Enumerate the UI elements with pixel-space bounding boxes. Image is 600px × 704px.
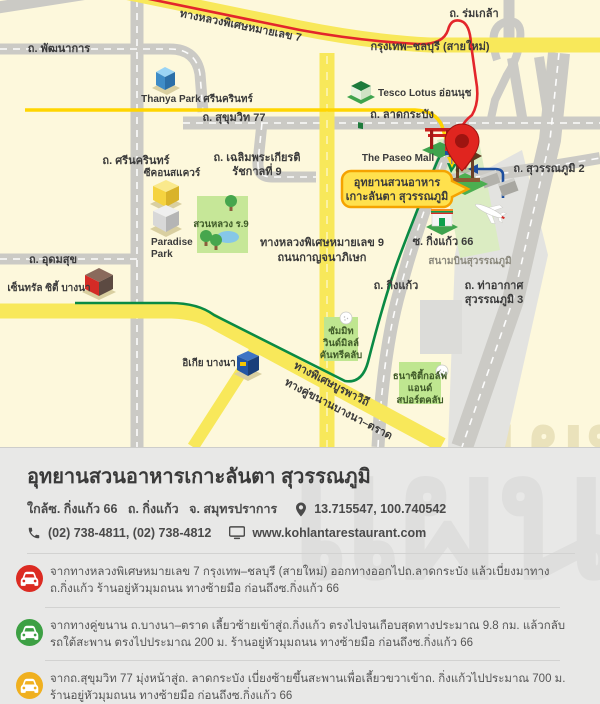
label-thana-1: ธนาซิตี้กอล์ฟ	[393, 368, 448, 382]
label-motorway9-2: ถนนกาญจนาภิเษก	[278, 251, 367, 264]
label-ladkrabang: ถ. ลาดกระบัง	[370, 108, 434, 121]
label-udomsuk: ถ. อุดมสุข	[29, 254, 77, 267]
direction-text: จากถ.สุขุมวิท 77 มุ่งหน้าสู่ถ. ลาดกระบัง…	[50, 670, 570, 704]
label-paradise-1: Paradise	[151, 237, 193, 248]
monitor-icon	[229, 526, 245, 540]
restaurant-callout: อุทยานสวนอาหาร เกาะลันตา สุวรรณภูมิ	[342, 171, 468, 207]
coordinates-text: 13.715547, 100.740542	[314, 502, 446, 516]
label-soi66: ซ. กิ่งแก้ว 66	[413, 233, 474, 248]
label-paradise-2: Park	[151, 249, 173, 260]
label-airport-road-2: สุวรรณภูมิ 3	[465, 293, 524, 307]
address-row: ใกล้ซ. กิ่งแก้ว 66 ถ. กิ่งแก้ว จ. สมุทรป…	[27, 499, 600, 519]
callout-line2: เกาะลันตา สุวรรณภูมิ	[346, 190, 449, 204]
phone-numbers: (02) 738-4811, (02) 738-4812	[48, 526, 211, 540]
label-phatthanakan: ถ. พัฒนาการ	[28, 42, 90, 55]
label-paseo: The Paseo Mall	[362, 153, 434, 164]
label-seacon: ซีคอนสแควร์	[144, 167, 201, 179]
website-url[interactable]: www.kohlantarestaurant.com	[252, 526, 426, 540]
label-summit-1: ซัมมิท	[328, 326, 353, 337]
direction-text: จากทางคู่ขนาน ถ.บางนา–ตราด เลี้ยวซ้ายเข้…	[50, 617, 570, 653]
map-canvas: แผนที่	[0, 0, 600, 447]
label-chalermprakiat-2: รัชกาลที่ 9	[232, 163, 281, 178]
label-summit-2: วินด์มิลล์	[322, 337, 359, 349]
label-kingkaew: ถ. กิ่งแก้ว	[374, 277, 419, 292]
direction-row-sukhumvit77: จากถ.สุขุมวิท 77 มุ่งหน้าสู่ถ. ลาดกระบัง…	[0, 661, 600, 704]
label-ikea: อิเกีย บางนา	[182, 357, 235, 369]
label-srinagarindra: ถ. ศรีนครินทร์	[102, 154, 169, 167]
label-park-r9: สวนหลวง ร.9	[193, 219, 248, 230]
car-icon-yellow	[16, 672, 43, 699]
label-bkk-chonburi: กรุงเทพ–ชลบุรี (สายใหม่)	[370, 39, 489, 54]
label-airport-road-1: ถ. ท่าอากาศ	[465, 280, 525, 292]
label-thana-3: สปอร์ตคลับ	[396, 394, 443, 406]
contact-row: (02) 738-4811, (02) 738-4812 www.kohlant…	[27, 526, 600, 540]
label-airport: สนามบินสุวรรณภูมิ	[428, 255, 511, 268]
address-text: ใกล้ซ. กิ่งแก้ว 66 ถ. กิ่งแก้ว จ. สมุทรป…	[27, 499, 277, 519]
info-panel: แผนที่ อุทยานสวนอาหารเกาะลันตา สุวรรณภูม…	[0, 447, 600, 704]
direction-row-bangna-trad: จากทางคู่ขนาน ถ.บางนา–ตราด เลี้ยวซ้ายเข้…	[0, 608, 600, 661]
label-thanya: Thanya Park ศรีนครินทร์	[141, 93, 253, 105]
label-tesco: Tesco Lotus อ่อนนุช	[378, 87, 472, 99]
label-sukhumvit77: ถ. สุขุมวิท 77	[203, 111, 266, 125]
direction-text: จากทางหลวงพิเศษหมายเลข 7 กรุงเทพ–ชลบุรี …	[50, 563, 570, 599]
phone-icon	[27, 526, 41, 540]
label-motorway9-1: ทางหลวงพิเศษหมายเลข 9	[260, 236, 384, 249]
direction-row-motorway7: จากทางหลวงพิเศษหมายเลข 7 กรุงเทพ–ชลบุรี …	[0, 554, 600, 607]
directions-list: จากทางหลวงพิเศษหมายเลข 7 กรุงเทพ–ชลบุรี …	[0, 554, 600, 704]
car-icon-red	[16, 565, 43, 592]
label-suvarnabhumi2: ถ. สุวรรณภูมิ 2	[513, 162, 584, 176]
label-central: เซ็นทรัล ซิตี้ บางนา	[7, 280, 90, 294]
label-romklao: ถ. ร่มเกล้า	[449, 7, 498, 20]
car-icon-green	[16, 619, 43, 646]
label-thana-2: แอนด์	[408, 382, 433, 394]
label-chalermprakiat-1: ถ. เฉลิมพระเกียรติ	[213, 151, 300, 164]
label-summit-3: คันทรีคลับ	[320, 349, 362, 361]
restaurant-title: อุทยานสวนอาหารเกาะลันตา สุวรรณภูมิ	[27, 460, 600, 492]
callout-line1: อุทยานสวนอาหาร	[354, 177, 441, 190]
location-pin-icon	[295, 502, 307, 517]
